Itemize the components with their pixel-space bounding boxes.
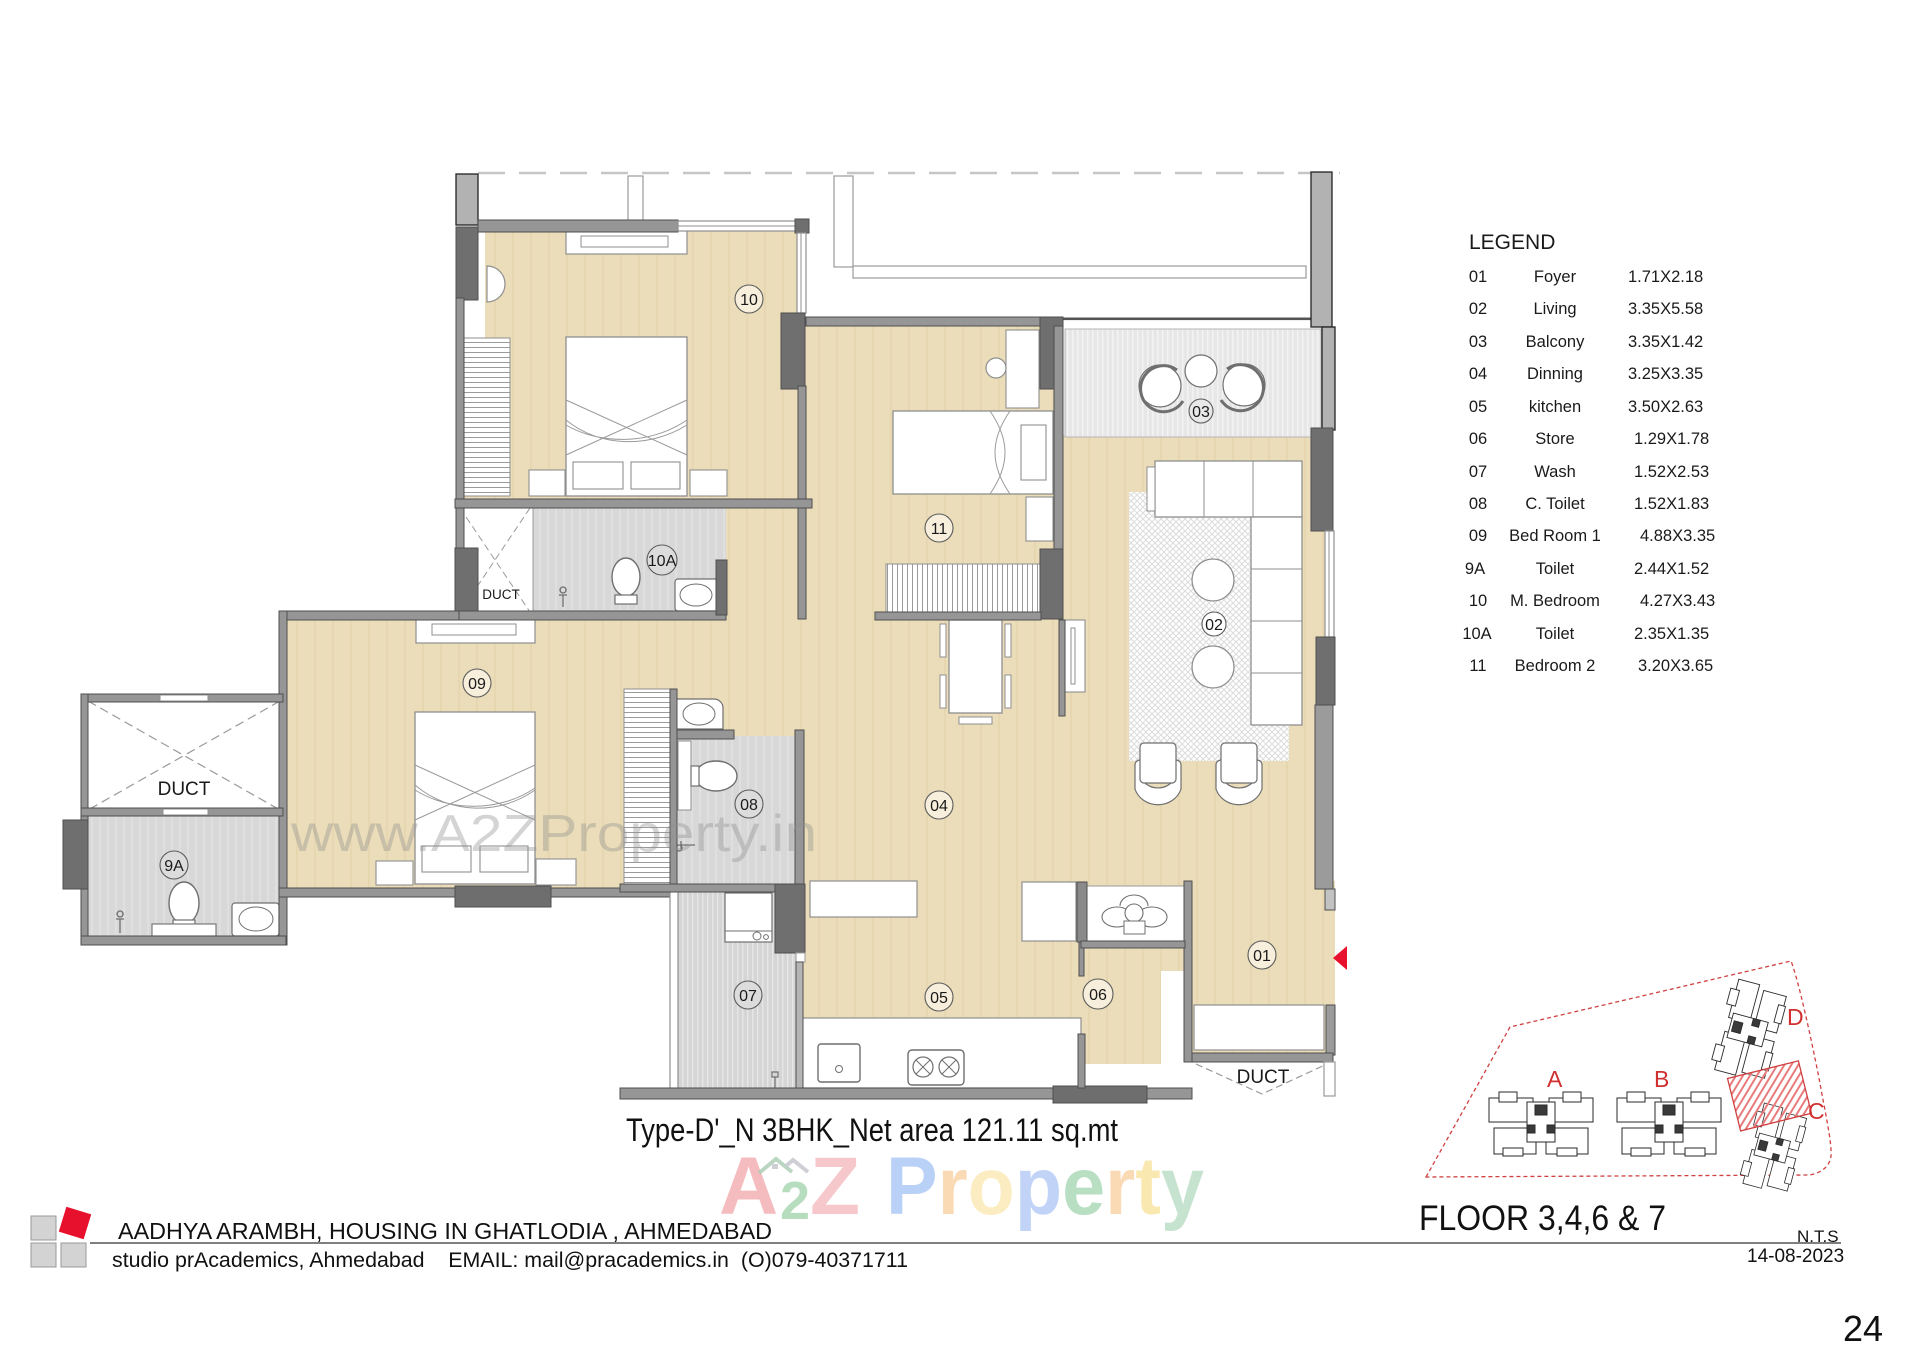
- svg-text:05: 05: [1469, 398, 1487, 416]
- svg-text:DUCT: DUCT: [158, 779, 211, 800]
- svg-text:04: 04: [1469, 365, 1487, 383]
- svg-text:Wash: Wash: [1534, 463, 1576, 481]
- svg-text:11: 11: [931, 521, 948, 538]
- svg-text:1.52X1.83: 1.52X1.83: [1634, 495, 1709, 513]
- svg-text:04: 04: [930, 798, 948, 815]
- svg-text:AADHYA ARAMBH, HOUSING IN GHAT: AADHYA ARAMBH, HOUSING IN GHATLODIA , AH…: [118, 1218, 772, 1244]
- svg-text:DUCT: DUCT: [1237, 1067, 1290, 1088]
- svg-text:02: 02: [1469, 300, 1487, 318]
- svg-text:1.71X2.18: 1.71X2.18: [1628, 268, 1703, 286]
- svg-text:01: 01: [1253, 948, 1271, 965]
- svg-text:03: 03: [1192, 404, 1210, 421]
- svg-text:2.35X1.35: 2.35X1.35: [1634, 625, 1709, 643]
- svg-text:4.88X3.35: 4.88X3.35: [1640, 527, 1715, 545]
- svg-text:DUCT: DUCT: [482, 587, 520, 602]
- svg-text:Z: Z: [810, 1141, 860, 1232]
- svg-text:9A: 9A: [164, 858, 184, 875]
- svg-text:A: A: [1547, 1066, 1563, 1092]
- svg-text:Bedroom 2: Bedroom 2: [1515, 657, 1596, 675]
- svg-text:LEGEND: LEGEND: [1469, 231, 1555, 254]
- svg-text:Dinning: Dinning: [1527, 365, 1583, 383]
- svg-text:Property: Property: [886, 1141, 1204, 1232]
- svg-text:Living: Living: [1533, 300, 1576, 318]
- svg-text:02: 02: [1205, 617, 1223, 634]
- svg-text:01: 01: [1469, 268, 1487, 286]
- svg-text:3.25X3.35: 3.25X3.35: [1628, 365, 1703, 383]
- svg-text:3.35X5.58: 3.35X5.58: [1628, 300, 1703, 318]
- svg-text:3.50X2.63: 3.50X2.63: [1628, 398, 1703, 416]
- svg-text:06: 06: [1089, 987, 1107, 1004]
- svg-text:studio prAcademics, Ahmedabad: studio prAcademics, Ahmedabad EMAIL: mai…: [112, 1249, 908, 1272]
- svg-text:10: 10: [1469, 592, 1487, 610]
- svg-text:10A: 10A: [1462, 625, 1491, 643]
- svg-text:kitchen: kitchen: [1529, 398, 1581, 416]
- svg-text:11: 11: [1469, 657, 1486, 675]
- svg-text:B: B: [1654, 1066, 1669, 1092]
- svg-text:FLOOR 3,4,6 & 7: FLOOR 3,4,6 & 7: [1419, 1199, 1666, 1238]
- svg-text:9A: 9A: [1465, 560, 1485, 578]
- svg-text:07: 07: [739, 988, 757, 1005]
- svg-text:2.44X1.52: 2.44X1.52: [1634, 560, 1709, 578]
- svg-text:10: 10: [740, 292, 758, 309]
- svg-text:4.27X3.43: 4.27X3.43: [1640, 592, 1715, 610]
- svg-text:Balcony: Balcony: [1526, 333, 1585, 351]
- svg-text:1.52X2.53: 1.52X2.53: [1634, 463, 1709, 481]
- svg-text:2: 2: [780, 1171, 810, 1231]
- svg-text:M. Bedroom: M. Bedroom: [1510, 592, 1600, 610]
- svg-text:C: C: [1808, 1098, 1825, 1124]
- svg-text:Bed Room 1: Bed Room 1: [1509, 527, 1601, 545]
- svg-text:N.T.S: N.T.S: [1797, 1227, 1839, 1246]
- svg-text:05: 05: [930, 990, 948, 1007]
- svg-text:Toilet: Toilet: [1536, 625, 1575, 643]
- svg-text:08: 08: [1469, 495, 1487, 513]
- svg-text:D: D: [1787, 1004, 1804, 1030]
- svg-text:www.A2ZProperty.in: www.A2ZProperty.in: [290, 805, 817, 863]
- svg-text:3.20X3.65: 3.20X3.65: [1638, 657, 1713, 675]
- svg-text:06: 06: [1469, 430, 1487, 448]
- svg-text:09: 09: [468, 676, 486, 693]
- svg-text:10A: 10A: [648, 553, 677, 570]
- svg-text:3.35X1.42: 3.35X1.42: [1628, 333, 1703, 351]
- svg-text:Toilet: Toilet: [1536, 560, 1575, 578]
- svg-text:1.29X1.78: 1.29X1.78: [1634, 430, 1709, 448]
- svg-text:07: 07: [1469, 463, 1487, 481]
- svg-text:03: 03: [1469, 333, 1487, 351]
- svg-text:09: 09: [1469, 527, 1487, 545]
- svg-text:Store: Store: [1535, 430, 1574, 448]
- svg-text:Foyer: Foyer: [1534, 268, 1577, 286]
- svg-text:24: 24: [1843, 1308, 1883, 1349]
- svg-text:C. Toilet: C. Toilet: [1525, 495, 1585, 513]
- svg-text:14-08-2023: 14-08-2023: [1747, 1246, 1844, 1267]
